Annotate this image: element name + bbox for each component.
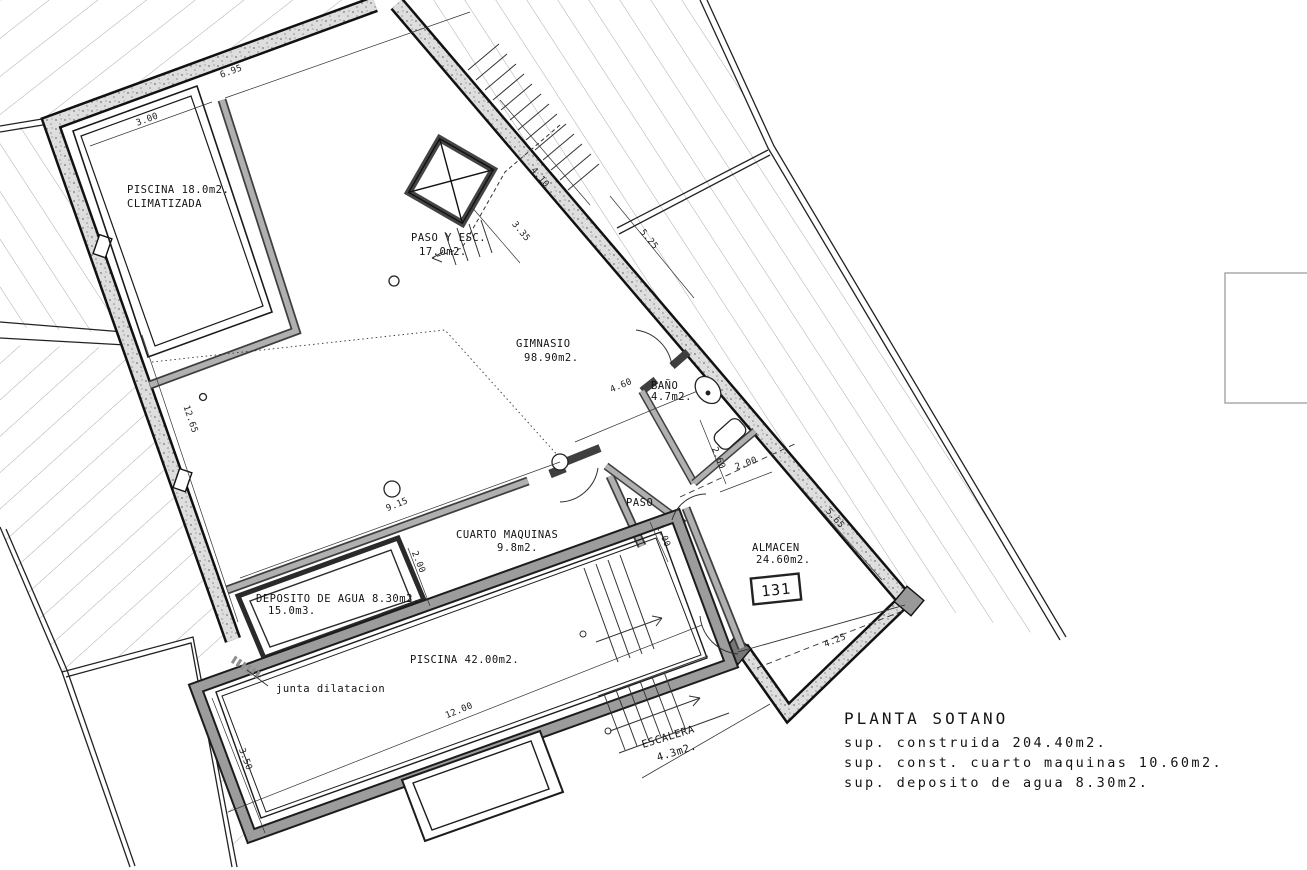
bano-west-wall (642, 391, 694, 483)
bano-door-arc (636, 330, 672, 366)
label-cuarto-maquinas-2: 9.8m2. (497, 542, 538, 554)
label-junta-dilatacion: junta dilatacion (276, 683, 385, 695)
gym-door-arc (560, 468, 598, 502)
pool-step-marker (580, 631, 586, 637)
label-bano-2: 4.7m2. (651, 391, 692, 403)
exterior-wall-almacen-south (742, 600, 905, 713)
plan-area-line2: sup. const. cuarto maquinas 10.60m2. (844, 755, 1223, 771)
dim-3-35: 3.35 (509, 220, 531, 244)
floor-plan-canvas: PISCINA 18.0m2. CLIMATIZADA PASO Y ESC. … (0, 0, 1307, 870)
label-almacen: ALMACEN (752, 542, 800, 554)
plan-area-line1: sup. construida 204.40m2. (844, 735, 1107, 751)
plan-area-line3: sup. deposito de agua 8.30m2. (844, 775, 1149, 791)
dim-4-25: 4.25 (823, 632, 848, 650)
label-piscina-climatizada: PISCINA 18.0m2. (127, 184, 229, 196)
label-gimnasio: GIMNASIO (516, 338, 571, 350)
dim-2-00-bano: 2.00 (734, 456, 759, 473)
label-deposito-2: 15.0m3. (268, 605, 316, 617)
gym-se-wall-stub (565, 448, 600, 462)
gym-ceiling-dotted-line (152, 330, 560, 458)
label-almacen-2: 24.60m2. (756, 554, 811, 566)
elevator-shaft (409, 139, 494, 224)
column (389, 276, 399, 286)
dim-9-15: 9.15 (385, 496, 410, 514)
label-gimnasio-2: 98.90m2. (524, 352, 579, 364)
pool-room-partition-outline (150, 100, 296, 385)
legend-box-empty (1225, 273, 1307, 403)
label-piscina-climatizada-2: CLIMATIZADA (127, 198, 202, 210)
label-paso-esc-2: 17.0m2. (419, 246, 467, 258)
pool-steps (584, 555, 662, 662)
room-number-tag: 131 (751, 574, 801, 605)
label-piscina-exterior: PISCINA 42.00m2. (410, 654, 519, 666)
dim-12-65: 12.65 (181, 404, 200, 434)
title-block: PLANTA SOTANO sup. construida 204.40m2. … (844, 709, 1223, 791)
fence-mid-left-inner (0, 338, 126, 345)
tag-number: 131 (760, 579, 792, 600)
dim-3-50: 3.50 (236, 747, 254, 772)
column (384, 481, 400, 497)
dim-4-60: 4.60 (609, 377, 634, 395)
label-cuarto-maquinas: CUARTO MAQUINAS (456, 529, 558, 541)
label-paso: PASO (626, 497, 653, 509)
label-deposito: DEPOSITO DE AGUA 8.30m2. (256, 593, 420, 605)
basement-floor-plan: PISCINA 18.0m2. CLIMATIZADA PASO Y ESC. … (0, 0, 1307, 870)
label-paso-esc: PASO Y ESC. (411, 232, 486, 244)
column (200, 394, 207, 401)
sink-drain (706, 391, 710, 395)
dim-12-00: 12.00 (444, 701, 474, 721)
plan-title: PLANTA SOTANO (844, 709, 1008, 728)
dim-3-00: 3.00 (135, 112, 160, 129)
